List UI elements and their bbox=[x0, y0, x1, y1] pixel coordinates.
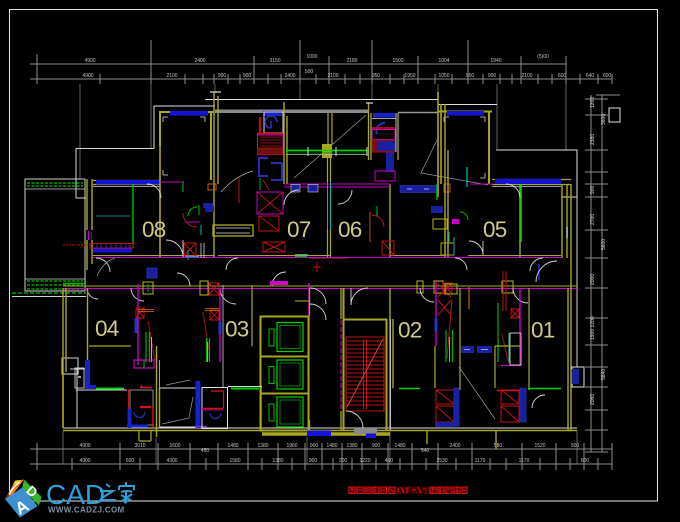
svg-text:02: 02 bbox=[398, 318, 422, 343]
svg-text:900: 900 bbox=[243, 73, 252, 79]
svg-text:1380: 1380 bbox=[346, 443, 357, 449]
svg-text:1480: 1480 bbox=[227, 443, 238, 449]
svg-text:1950: 1950 bbox=[404, 73, 415, 79]
svg-text:900: 900 bbox=[372, 443, 381, 449]
svg-text:2000: 2000 bbox=[590, 274, 596, 285]
svg-text:950: 950 bbox=[466, 73, 475, 79]
svg-text:03: 03 bbox=[225, 317, 249, 342]
svg-text:2100: 2100 bbox=[327, 73, 338, 79]
svg-text:640: 640 bbox=[586, 73, 595, 79]
svg-text:(5)00: (5)00 bbox=[537, 54, 549, 60]
svg-text:04: 04 bbox=[95, 316, 119, 341]
svg-text:5840: 5840 bbox=[601, 369, 607, 380]
svg-text:500: 500 bbox=[305, 69, 314, 75]
svg-text:01: 01 bbox=[531, 318, 555, 343]
svg-text:900: 900 bbox=[310, 443, 319, 449]
svg-text:900: 900 bbox=[590, 185, 596, 194]
svg-text:3600: 3600 bbox=[601, 114, 607, 125]
svg-text:450: 450 bbox=[201, 448, 210, 454]
svg-text:WWW.CADZJ.COM: WWW.CADZJ.COM bbox=[48, 506, 125, 515]
svg-text:2380: 2380 bbox=[590, 134, 596, 145]
svg-text:1050: 1050 bbox=[438, 73, 449, 79]
svg-text:600: 600 bbox=[558, 73, 567, 79]
svg-text:580: 580 bbox=[494, 443, 503, 449]
svg-text:1480: 1480 bbox=[326, 443, 337, 449]
svg-text:1600: 1600 bbox=[169, 443, 180, 449]
svg-text:950: 950 bbox=[372, 73, 381, 79]
svg-text:2180: 2180 bbox=[346, 58, 357, 64]
svg-text:500: 500 bbox=[571, 443, 580, 449]
svg-text:2100: 2100 bbox=[166, 73, 177, 79]
svg-text:05: 05 bbox=[483, 217, 507, 242]
svg-text:1500: 1500 bbox=[392, 58, 403, 64]
svg-text:06: 06 bbox=[338, 217, 362, 242]
svg-text:2700: 2700 bbox=[590, 214, 596, 225]
svg-text:1200: 1200 bbox=[590, 97, 596, 108]
svg-text:1380: 1380 bbox=[272, 458, 283, 464]
svg-text:900: 900 bbox=[488, 73, 497, 79]
svg-text:4900: 4900 bbox=[79, 443, 90, 449]
svg-text:1520: 1520 bbox=[534, 443, 545, 449]
svg-text:600: 600 bbox=[126, 458, 135, 464]
svg-text:1380: 1380 bbox=[257, 443, 268, 449]
svg-text:08: 08 bbox=[142, 217, 166, 242]
svg-text:1580: 1580 bbox=[229, 458, 240, 464]
svg-text:2060: 2060 bbox=[590, 394, 596, 405]
svg-text:2400: 2400 bbox=[194, 58, 205, 64]
svg-text:1940: 1940 bbox=[490, 58, 501, 64]
svg-text:3010: 3010 bbox=[134, 443, 145, 449]
svg-text:600: 600 bbox=[581, 458, 590, 464]
svg-text:1004: 1004 bbox=[438, 58, 449, 64]
svg-text:410: 410 bbox=[385, 458, 394, 464]
svg-text:540: 540 bbox=[421, 448, 430, 454]
svg-text:2530: 2530 bbox=[436, 458, 447, 464]
svg-text:2400: 2400 bbox=[284, 73, 295, 79]
svg-text:4900: 4900 bbox=[82, 73, 93, 79]
svg-text:1220: 1220 bbox=[359, 458, 370, 464]
svg-text:07: 07 bbox=[287, 217, 311, 242]
svg-text:4900: 4900 bbox=[79, 458, 90, 464]
svg-text:1960: 1960 bbox=[286, 443, 297, 449]
svg-text:900: 900 bbox=[309, 458, 318, 464]
svg-text:1000: 1000 bbox=[306, 54, 317, 60]
svg-text:600: 600 bbox=[603, 73, 612, 79]
svg-text:1170: 1170 bbox=[475, 458, 486, 464]
svg-text:4300: 4300 bbox=[166, 458, 177, 464]
svg-text:4900: 4900 bbox=[84, 58, 95, 64]
svg-text:5600: 5600 bbox=[601, 239, 607, 250]
svg-text:3150: 3150 bbox=[269, 58, 280, 64]
svg-text:900: 900 bbox=[218, 73, 227, 79]
svg-text:1900 1200: 1900 1200 bbox=[590, 316, 596, 340]
svg-text:1480: 1480 bbox=[394, 443, 405, 449]
svg-text:2400: 2400 bbox=[449, 443, 460, 449]
svg-text:2100: 2100 bbox=[521, 73, 532, 79]
svg-text:200: 200 bbox=[339, 458, 348, 464]
svg-text:1170: 1170 bbox=[519, 458, 530, 464]
